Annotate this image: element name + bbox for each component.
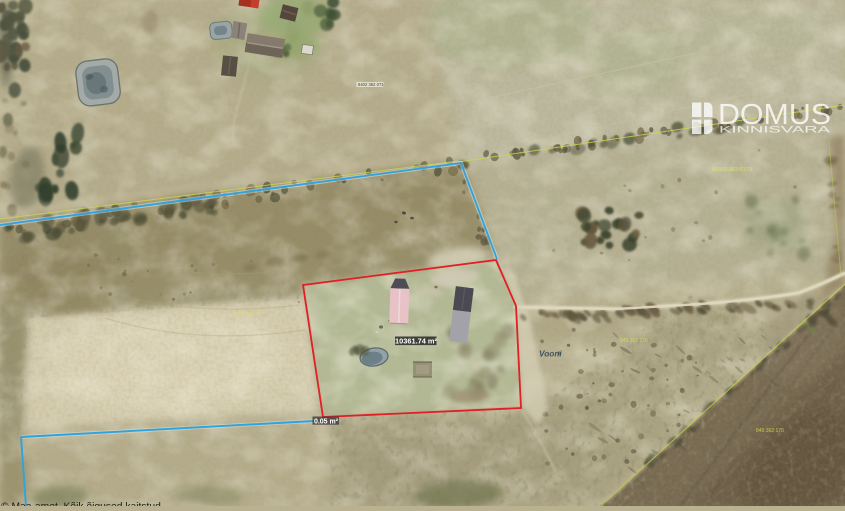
svg-text:8450:362:05: 8450:362:05 (233, 312, 261, 318)
svg-text:0.05 m²: 0.05 m² (314, 418, 339, 425)
svg-text:84502:362:0170: 84502:362:0170 (712, 167, 752, 173)
svg-text:10361.74 m²: 10361.74 m² (395, 337, 437, 346)
svg-text:8402 362 071: 8402 362 071 (358, 82, 384, 87)
svg-text:© Maa-amet, Kõik õigused kaits: © Maa-amet, Kõik õigused kaitstud (1, 502, 161, 507)
svg-text:KINNISVARA: KINNISVARA (719, 125, 832, 135)
svg-text:Vooni: Vooni (539, 349, 562, 359)
svg-text:845:362:170: 845:362:170 (756, 428, 784, 434)
svg-text:845:362:170: 845:362:170 (620, 338, 648, 344)
